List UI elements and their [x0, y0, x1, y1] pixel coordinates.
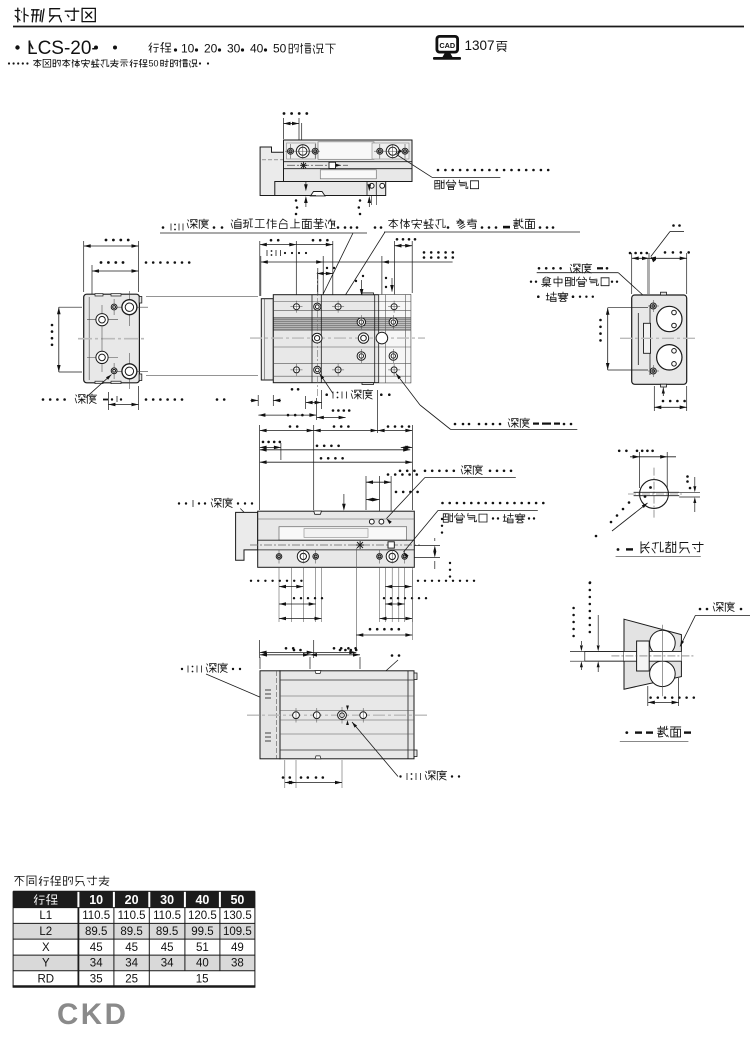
- svg-text:L2: L2: [39, 926, 52, 938]
- svg-text:30: 30: [227, 42, 241, 56]
- svg-text:LCS-20-: LCS-20-: [27, 38, 98, 59]
- svg-text:51: 51: [196, 942, 209, 954]
- svg-text:89.5: 89.5: [120, 926, 142, 938]
- svg-text:110.5: 110.5: [153, 910, 181, 922]
- svg-text:45: 45: [161, 942, 174, 954]
- svg-text:25: 25: [125, 973, 138, 985]
- svg-text:130.5: 130.5: [223, 910, 252, 922]
- svg-text:X: X: [42, 942, 50, 954]
- svg-text:15: 15: [196, 973, 209, 985]
- svg-text:CKD: CKD: [57, 998, 128, 1031]
- svg-text:110.5: 110.5: [118, 910, 146, 922]
- svg-text:40: 40: [195, 893, 209, 907]
- svg-text:40: 40: [196, 958, 209, 970]
- svg-text:RD: RD: [37, 973, 54, 985]
- svg-text:110.5: 110.5: [82, 910, 110, 922]
- svg-text:34: 34: [90, 958, 103, 970]
- svg-text:10: 10: [181, 42, 195, 56]
- svg-text:CAD: CAD: [439, 41, 455, 50]
- svg-text:49: 49: [231, 942, 244, 954]
- svg-text:10: 10: [89, 893, 103, 907]
- svg-text:38: 38: [231, 958, 244, 970]
- svg-text:50: 50: [230, 893, 244, 907]
- svg-text:1307: 1307: [465, 38, 495, 53]
- svg-text:34: 34: [125, 958, 138, 970]
- svg-text:120.5: 120.5: [188, 910, 217, 922]
- svg-text:Y: Y: [42, 958, 50, 970]
- svg-text:20: 20: [204, 42, 218, 56]
- svg-text:35: 35: [90, 973, 103, 985]
- svg-text:34: 34: [161, 958, 174, 970]
- svg-text:50: 50: [149, 59, 159, 69]
- svg-text:89.5: 89.5: [156, 926, 178, 938]
- svg-text:50: 50: [273, 42, 287, 56]
- svg-text:20: 20: [125, 893, 139, 907]
- svg-text:45: 45: [90, 942, 103, 954]
- svg-text:45: 45: [125, 942, 138, 954]
- svg-text:40: 40: [250, 42, 264, 56]
- svg-text:99.5: 99.5: [191, 926, 213, 938]
- svg-text:89.5: 89.5: [85, 926, 107, 938]
- svg-text:109.5: 109.5: [223, 926, 252, 938]
- svg-text:30: 30: [160, 893, 174, 907]
- svg-text:L1: L1: [39, 910, 52, 922]
